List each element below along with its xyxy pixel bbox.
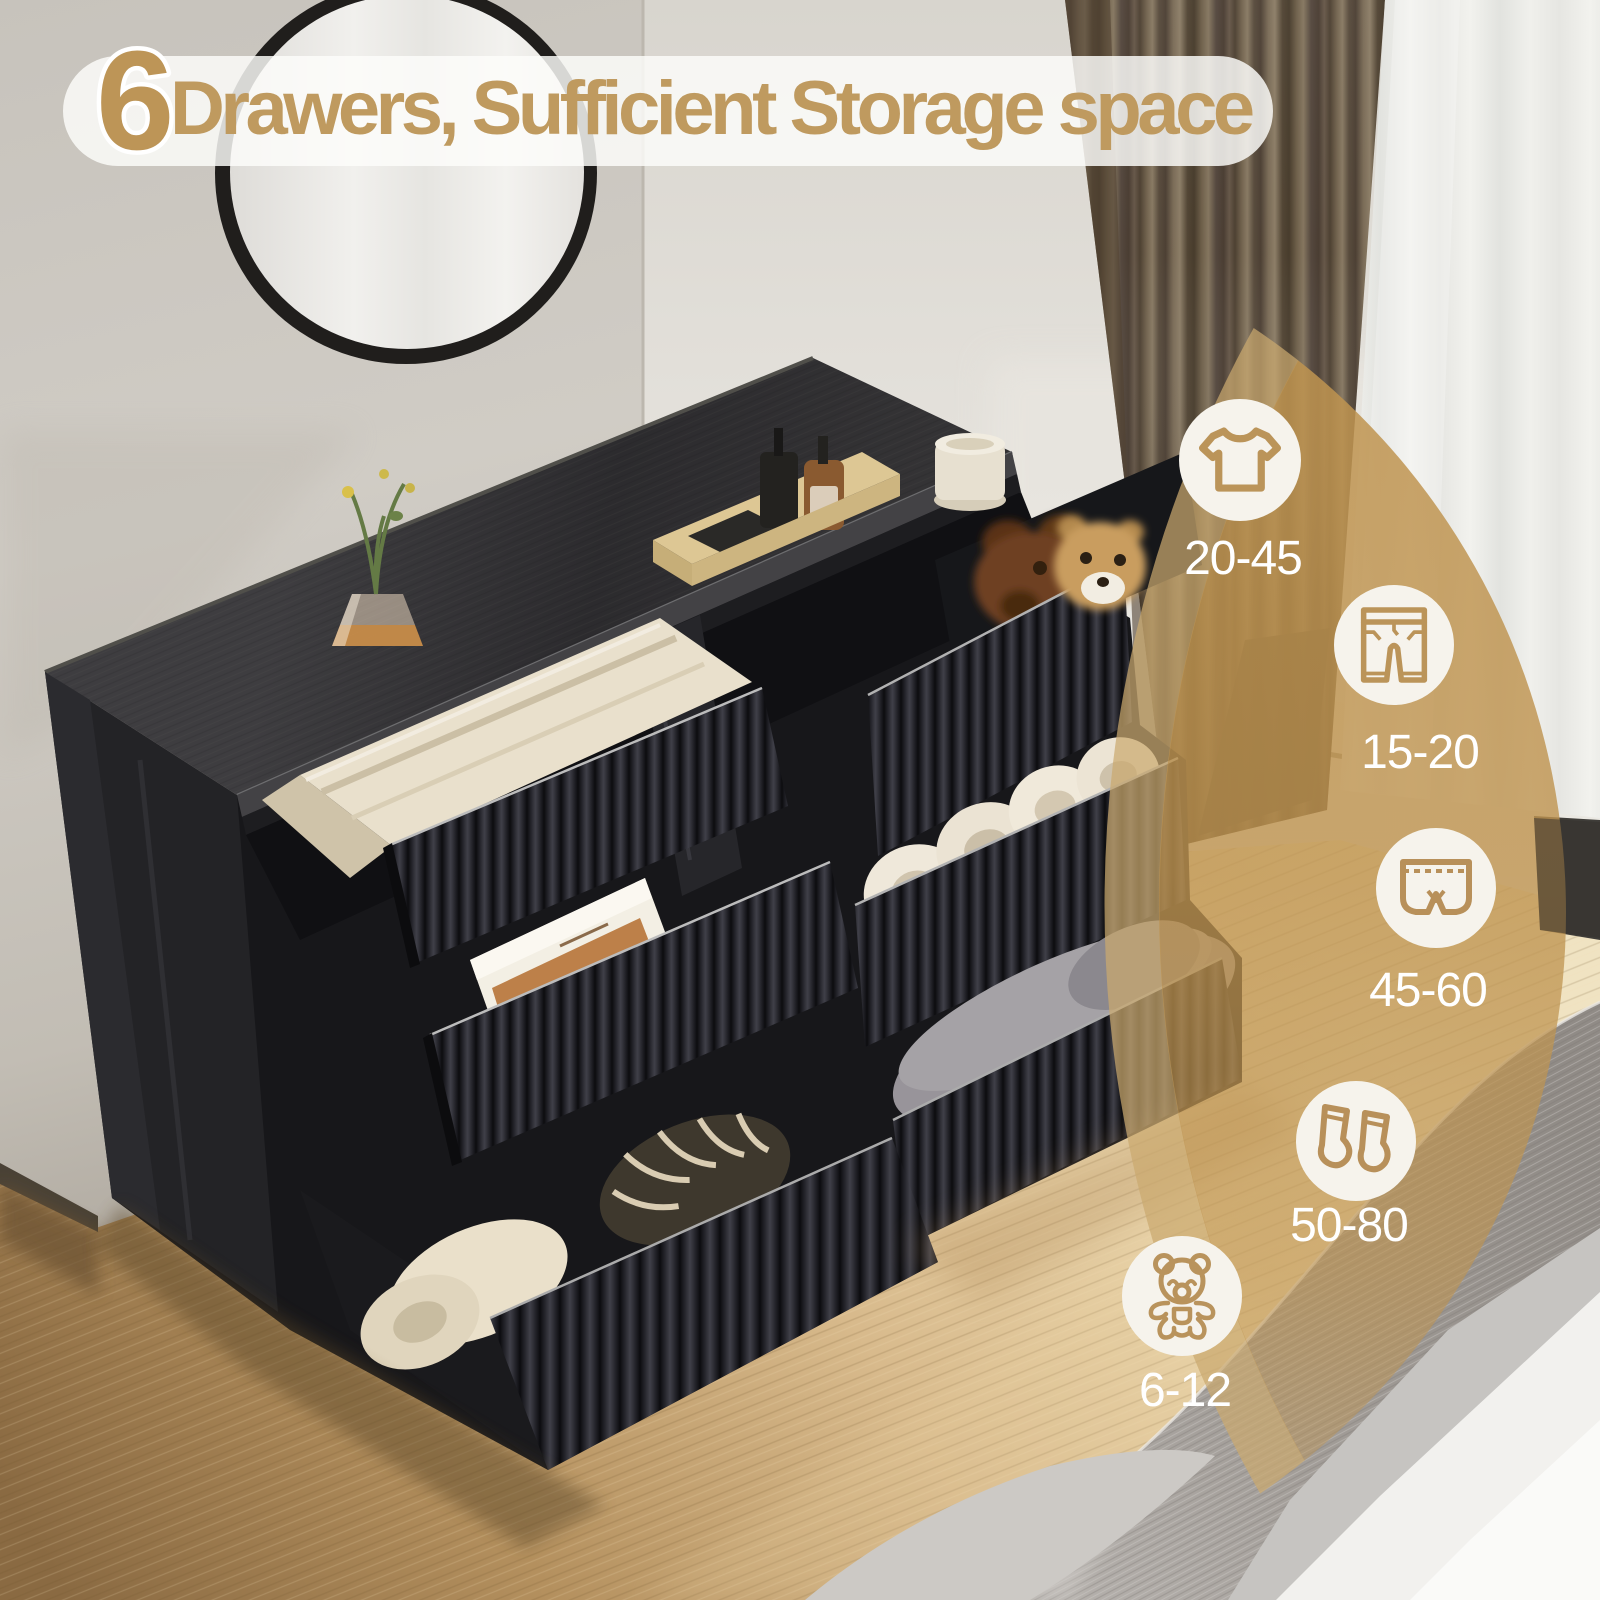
svg-text:6-12: 6-12 xyxy=(1139,1364,1231,1417)
svg-text:15-20: 15-20 xyxy=(1361,726,1479,779)
svg-text:Drawers, Sufficient Storage sp: Drawers, Sufficient Storage space xyxy=(170,66,1253,151)
svg-text:50-80: 50-80 xyxy=(1290,1199,1408,1252)
svg-text:6: 6 xyxy=(96,21,174,179)
svg-text:20-45: 20-45 xyxy=(1184,532,1302,585)
svg-text:45-60: 45-60 xyxy=(1369,964,1487,1017)
